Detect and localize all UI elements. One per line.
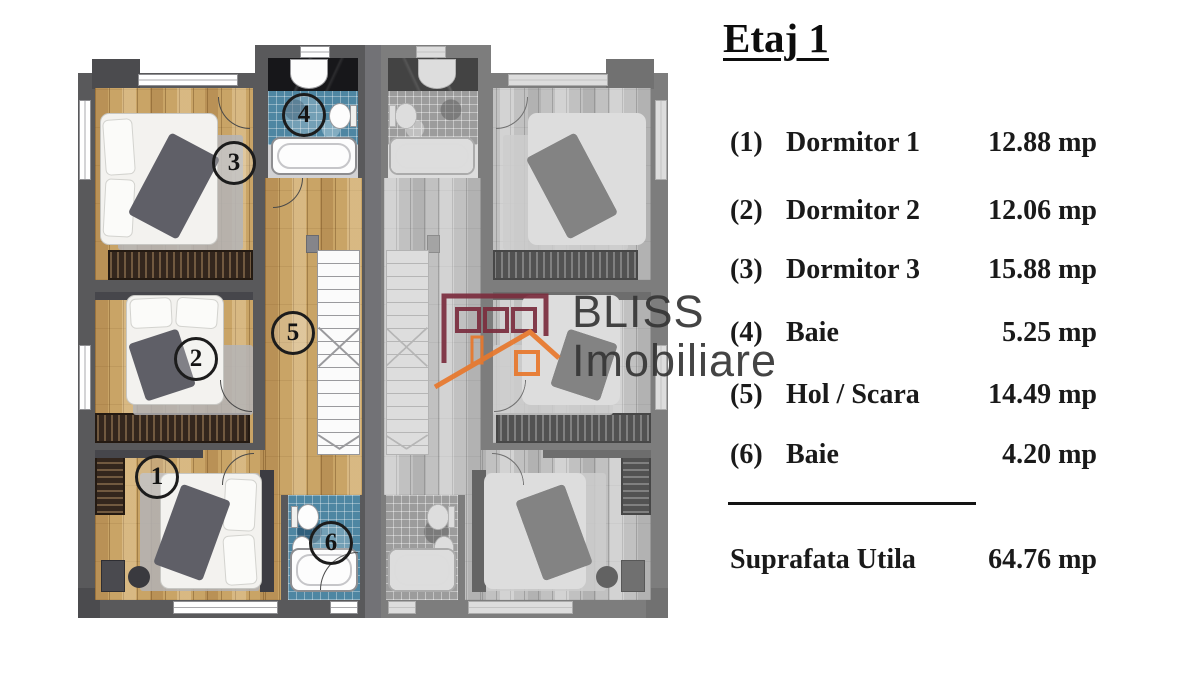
legend-row-number: (2) <box>730 195 786 227</box>
toilet-tank <box>389 105 396 127</box>
chair <box>596 566 618 588</box>
legend-divider <box>728 502 976 505</box>
legend-row-area: 5.25 mp <box>1002 317 1097 349</box>
wardrobe <box>95 450 125 515</box>
pillow <box>610 118 644 176</box>
wardrobe <box>621 450 651 515</box>
toilet-icon <box>427 504 449 530</box>
window <box>300 46 330 58</box>
bed-headboard <box>260 470 274 592</box>
room-number-6: 6 <box>309 521 353 565</box>
wardrobe <box>108 250 253 280</box>
legend-row-label: Baie <box>786 317 1002 349</box>
window <box>388 601 416 614</box>
toilet-tank <box>448 506 455 528</box>
legend-total-area: 64.76 mp <box>988 544 1097 576</box>
room-number-1: 1 <box>135 455 179 499</box>
sink-icon <box>290 59 328 89</box>
pillow <box>129 297 173 329</box>
bathtub-icon <box>389 137 475 175</box>
chair <box>128 566 150 588</box>
room-number-3: 3 <box>212 141 256 185</box>
legend-row-label: Hol / Scara <box>786 379 988 411</box>
window <box>79 345 91 410</box>
floorplan-flyer: { "title": "Etaj 1", "legend": { "rows":… <box>0 0 1200 693</box>
page-title: Etaj 1 <box>723 14 829 62</box>
room-number-2: 2 <box>174 337 218 381</box>
legend-row-area: 12.06 mp <box>988 195 1097 227</box>
legend-row-label: Dormitor 1 <box>786 127 988 159</box>
wardrobe <box>496 413 651 443</box>
party-wall <box>365 45 381 618</box>
legend-total-label: Suprafata Utila <box>730 544 988 576</box>
wardrobe <box>493 250 638 280</box>
toilet-icon <box>395 103 417 129</box>
legend-row: (3) Dormitor 3 15.88 mp <box>730 254 1097 286</box>
wardrobe <box>95 413 250 443</box>
desk <box>621 560 645 592</box>
pillow <box>222 534 257 586</box>
window <box>79 100 91 180</box>
window <box>655 100 667 180</box>
window <box>508 74 608 86</box>
window <box>173 601 278 614</box>
watermark-brand-line2: Imobiliare <box>572 338 777 383</box>
legend-row: (2) Dormitor 2 12.06 mp <box>730 195 1097 227</box>
window <box>330 601 358 614</box>
desk <box>101 560 125 592</box>
stairs <box>386 250 429 455</box>
watermark: BLISS Imobiliare <box>430 288 790 410</box>
corner-block <box>606 59 654 89</box>
legend-row-number: (1) <box>730 127 786 159</box>
pillow <box>102 118 136 176</box>
room-number-5: 5 <box>271 311 315 355</box>
toilet-tank <box>350 105 357 127</box>
pillow <box>175 297 219 330</box>
legend-row-label: Dormitor 2 <box>786 195 988 227</box>
legend-row-number: (3) <box>730 254 786 286</box>
legend-row-area: 15.88 mp <box>988 254 1097 286</box>
window <box>468 601 573 614</box>
bliss-logo-icon <box>432 290 567 400</box>
window <box>416 46 446 58</box>
legend-row-number: (6) <box>730 439 786 471</box>
legend-row-area: 4.20 mp <box>1002 439 1097 471</box>
legend-row-label: Baie <box>786 439 1002 471</box>
unit-left: 1 2 3 4 5 6 <box>78 45 365 618</box>
toilet-icon <box>329 103 351 129</box>
legend-total-row: Suprafata Utila 64.76 mp <box>730 544 1097 576</box>
legend-row-area: 14.49 mp <box>988 379 1097 411</box>
legend-row: (1) Dormitor 1 12.88 mp <box>730 127 1097 159</box>
window <box>138 74 238 86</box>
pillow <box>488 534 523 586</box>
room-number-4: 4 <box>282 93 326 137</box>
corner-block <box>92 59 140 89</box>
legend-row-area: 12.88 mp <box>988 127 1097 159</box>
bathtub-icon <box>388 548 456 592</box>
bathtub-icon <box>271 137 357 175</box>
legend-row: (6) Baie 4.20 mp <box>730 439 1097 471</box>
sink-icon <box>418 59 456 89</box>
legend-row-label: Dormitor 3 <box>786 254 988 286</box>
watermark-brand-line1: BLISS <box>572 289 705 334</box>
stairs <box>317 250 360 455</box>
wall-shadow <box>543 450 651 458</box>
